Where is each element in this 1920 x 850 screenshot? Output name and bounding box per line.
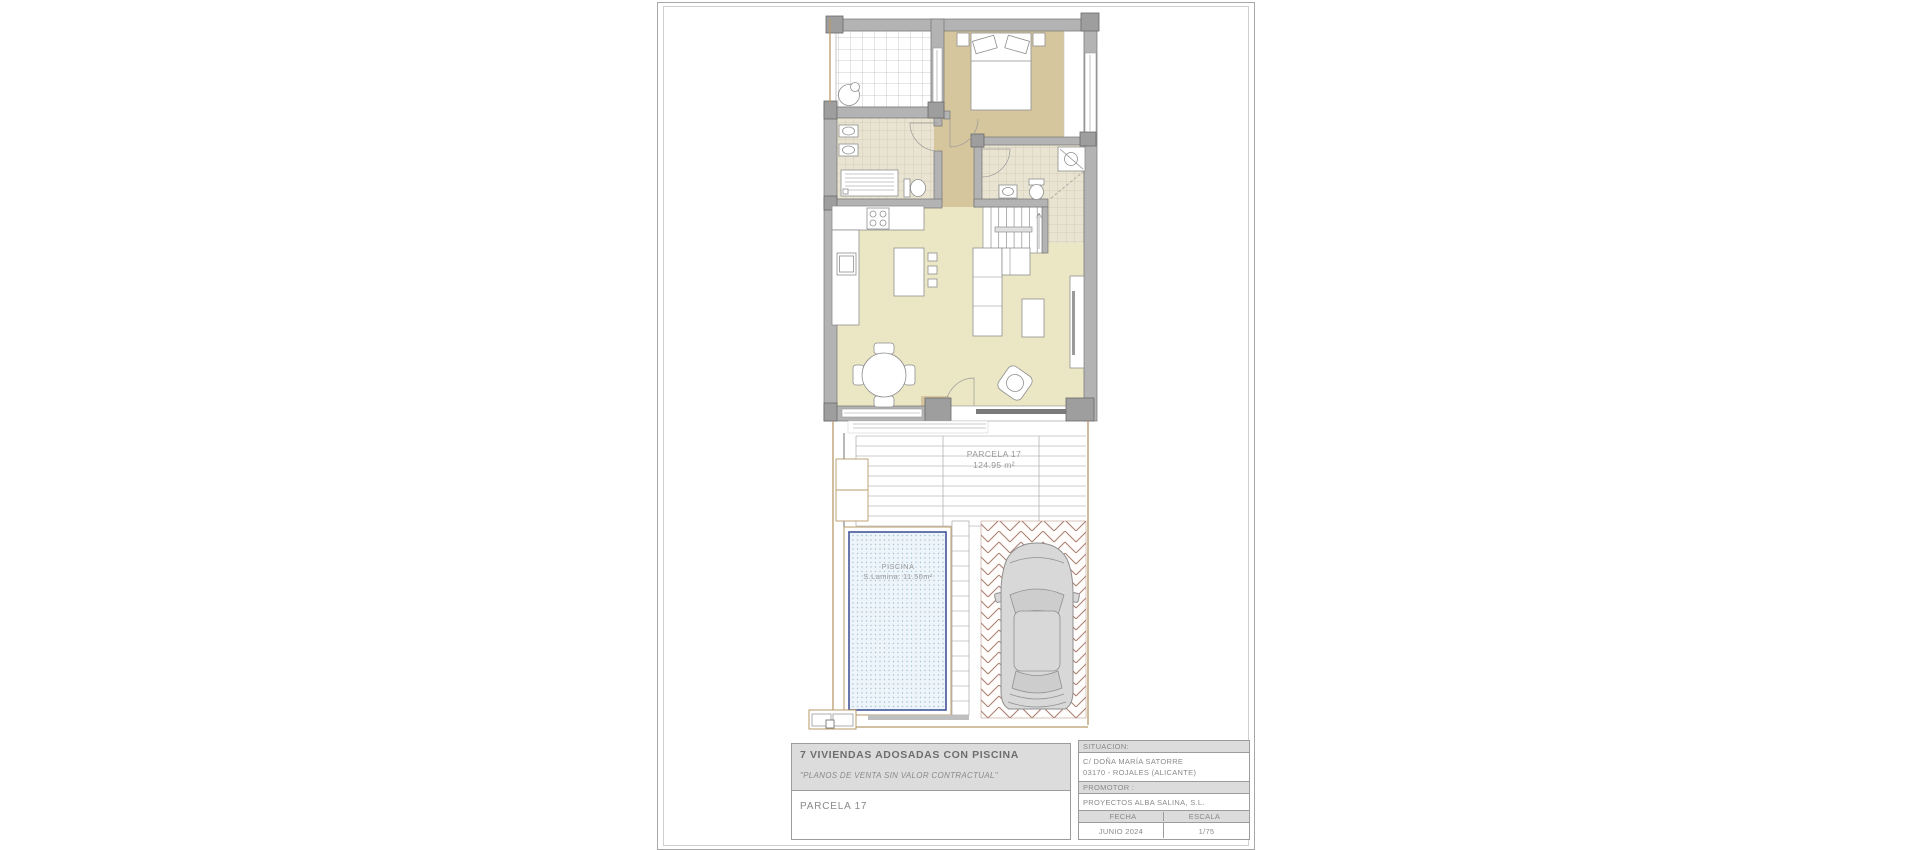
pool-name: PISCINA [839, 562, 957, 572]
coffee-table-icon [1022, 299, 1044, 337]
drawing-sheet: PARCELA 17 124.95 m² PISCINA S.Lamina: 1… [657, 2, 1255, 850]
tv-unit-icon [1070, 276, 1084, 368]
promotor-label: PROMOTOR : [1079, 782, 1249, 794]
kitchen-counter-left [832, 230, 859, 325]
staircase [983, 207, 1044, 253]
toilet-icon [904, 179, 926, 197]
tall-cabinet [894, 248, 924, 296]
car-icon [994, 543, 1079, 709]
terrace-step [848, 421, 988, 433]
situacion-address: C/ DOÑA MARÍA SATORRE 03170 - ROJALES (A… [1079, 753, 1249, 782]
bottom-glazing [949, 406, 1068, 421]
page-background: PARCELA 17 124.95 m² PISCINA S.Lamina: 1… [0, 0, 1920, 850]
fecha-escala-header: FECHA ESCALA [1079, 811, 1249, 823]
title-block-right: SITUACION: C/ DOÑA MARÍA SATORRE 03170 -… [1078, 740, 1250, 840]
fecha-value: JUNIO 2024 [1079, 823, 1164, 838]
washing-machine-icon [841, 170, 898, 196]
pool-label: PISCINA S.Lamina: 11.50m² [839, 562, 957, 582]
kitchen-sink-icon [837, 253, 856, 275]
escala-value: 1/75 [1164, 823, 1249, 838]
toilet-icon [1029, 179, 1044, 200]
hob-icon [867, 208, 889, 229]
parcela-name: PARCELA 17 [914, 449, 1074, 460]
parcela-area: 124.95 m² [914, 460, 1074, 471]
address-line1: C/ DOÑA MARÍA SATORRE [1083, 756, 1245, 767]
fecha-escala-values: JUNIO 2024 1/75 [1079, 823, 1249, 838]
project-title: 7 VIVIENDAS ADOSADAS CON PISCINA [800, 749, 1062, 761]
outdoor-equipment-box [809, 710, 856, 729]
pool-area: S.Lamina: 11.50m² [839, 572, 957, 582]
floor-plan-drawing [658, 3, 1254, 849]
parcela-area-label: PARCELA 17 124.95 m² [914, 449, 1074, 471]
address-line2: 03170 - ROJALES (ALICANTE) [1083, 767, 1245, 778]
title-band: 7 VIVIENDAS ADOSADAS CON PISCINA "PLANOS… [792, 744, 1070, 791]
escala-label: ESCALA [1164, 812, 1245, 821]
side-planters [836, 459, 868, 521]
parcel-name: PARCELA 17 [792, 791, 1070, 822]
shower-icon [1058, 147, 1085, 171]
paving-edge-strip [868, 715, 969, 720]
promotor-name: PROYECTOS ALBA SALINA, S.L. [1079, 794, 1249, 811]
fecha-label: FECHA [1083, 812, 1164, 821]
bathroom2-shower-leg [1048, 199, 1084, 243]
bedroom-gallery [1064, 31, 1084, 141]
title-block-left: 7 VIVIENDAS ADOSADAS CON PISCINA "PLANOS… [791, 743, 1071, 840]
pool-deck-planks [952, 521, 969, 715]
disclaimer-text: "PLANOS DE VENTA SIN VALOR CONTRACTUAL" [800, 771, 1062, 780]
pool [844, 527, 951, 715]
situacion-label: SITUACION: [1079, 741, 1249, 753]
